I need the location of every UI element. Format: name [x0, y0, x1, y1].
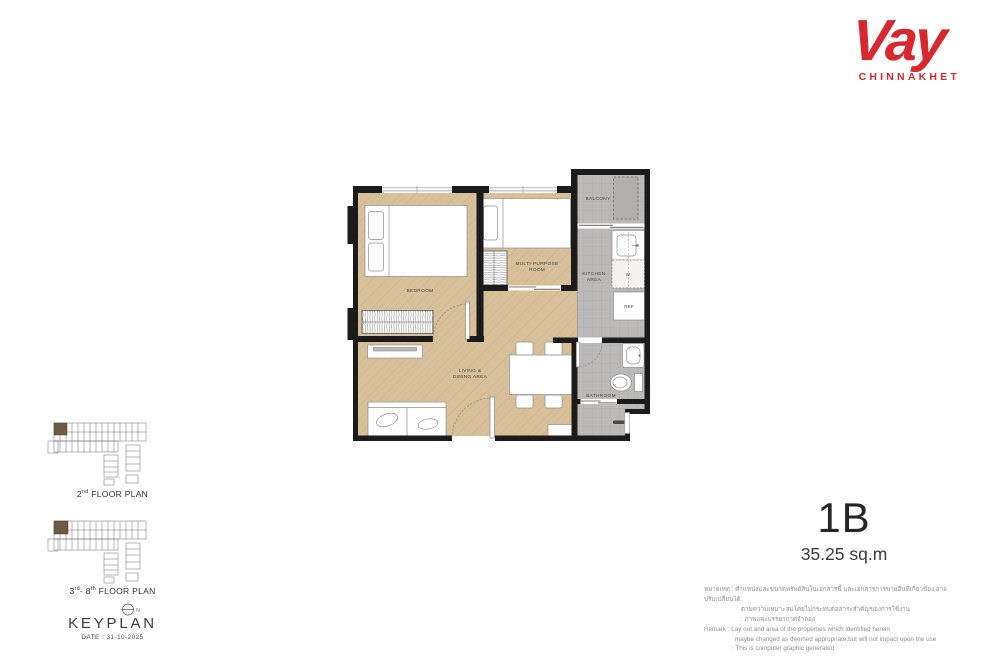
chair: [545, 395, 562, 408]
room-label-living: LIVING &: [459, 368, 482, 374]
room-label-balcony: BALCONY: [585, 196, 611, 202]
pillow: [484, 206, 498, 240]
chair: [516, 342, 533, 355]
chair: [545, 342, 562, 355]
tv: [374, 348, 417, 352]
floor-plan: BEDROOM MULTI-PURPOSE ROOM LIVING & DINI…: [340, 156, 670, 462]
toilet-tank: [635, 374, 643, 392]
front-door: [625, 413, 630, 434]
bedroom-door: [466, 302, 470, 339]
keyplan-3rd-8th-floor: [40, 516, 185, 586]
dining-table: [510, 355, 574, 395]
unit-area: 35.25 sq.m: [768, 544, 920, 565]
entry-door: [490, 397, 495, 438]
keyplan-3rd-8th-label: 3rd- 8th FLOOR PLAN: [40, 586, 185, 596]
keyplan-date: DATE : 31-10-2025: [40, 634, 185, 641]
keyplan-2nd-label: 2nd FLOOR PLAN: [40, 489, 185, 499]
disclaimer-line: : This is computer graphic generated: [704, 644, 954, 654]
toilet-bowl: [611, 374, 632, 391]
disclaimer-line: : ภาพและบรรยากาศจำลอง: [704, 615, 954, 625]
fridge-label: REF: [624, 304, 634, 309]
pillow: [369, 212, 384, 240]
north-label: N: [136, 608, 140, 614]
disclaimer: หมายเหตุ : ตำแหน่งและขนาดทรัพย์สินในเอกส…: [704, 585, 954, 654]
ac-unit: [614, 177, 639, 219]
unit-info: 1B 35.25 sq.m: [768, 494, 920, 565]
unit-code: 1B: [768, 494, 920, 542]
logo-wordmark: Vay: [850, 12, 962, 70]
chair: [516, 395, 533, 408]
room-label-kitchen: KITCHEN: [582, 271, 605, 277]
room-label-bathroom: BATHROOM: [586, 393, 616, 399]
bathroom-door: [576, 342, 579, 367]
room-label-bedroom: BEDROOM: [407, 288, 434, 294]
room-label-kitchen-2: AREA: [587, 277, 602, 283]
disclaimer-line: maybe changed as deemed appropriate,but …: [704, 635, 954, 645]
pillow: [369, 243, 384, 271]
brand-logo: Vay CHINNAKHET: [852, 12, 960, 83]
tv-console: [368, 345, 423, 358]
disclaimer-line: ตามความเหมาะสมโดยไม่กระทบต่อสาระสำคัญของ…: [704, 605, 954, 615]
keyplan-title: KEYPLAN: [40, 615, 185, 632]
room-label-multipurpose-2: ROOM: [529, 267, 545, 273]
disclaimer-line: Remark : Lay out and area of the propert…: [704, 625, 954, 635]
highlighted-unit: [54, 423, 67, 435]
highlighted-unit: [54, 521, 68, 534]
brochure-page: Vay CHINNAKHET: [0, 0, 1000, 667]
disclaimer-line: หมายเหตุ : ตำแหน่งและขนาดทรัพย์สินในเอกส…: [704, 585, 954, 605]
room-label-multipurpose: MULTI-PURPOSE: [516, 261, 559, 267]
keyplan-2nd-floor: [40, 418, 185, 488]
washer-label: W: [626, 272, 631, 277]
room-label-living-2: DINING AREA: [453, 374, 488, 380]
